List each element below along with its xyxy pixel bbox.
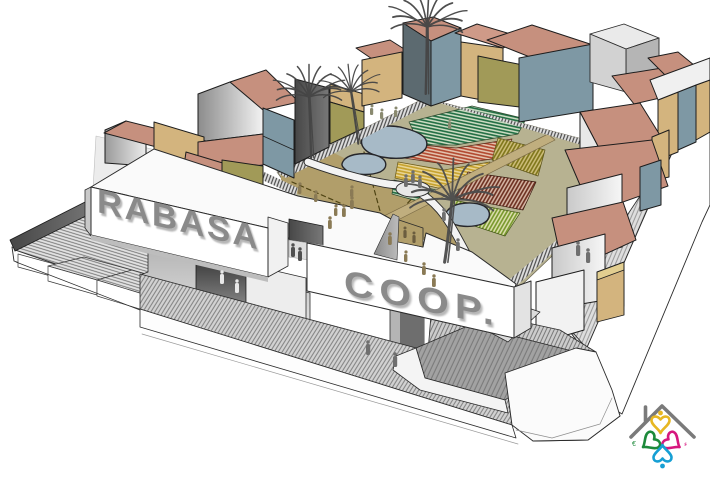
svg-text:€: € [632,441,636,448]
svg-text:ء: ء [684,441,687,448]
